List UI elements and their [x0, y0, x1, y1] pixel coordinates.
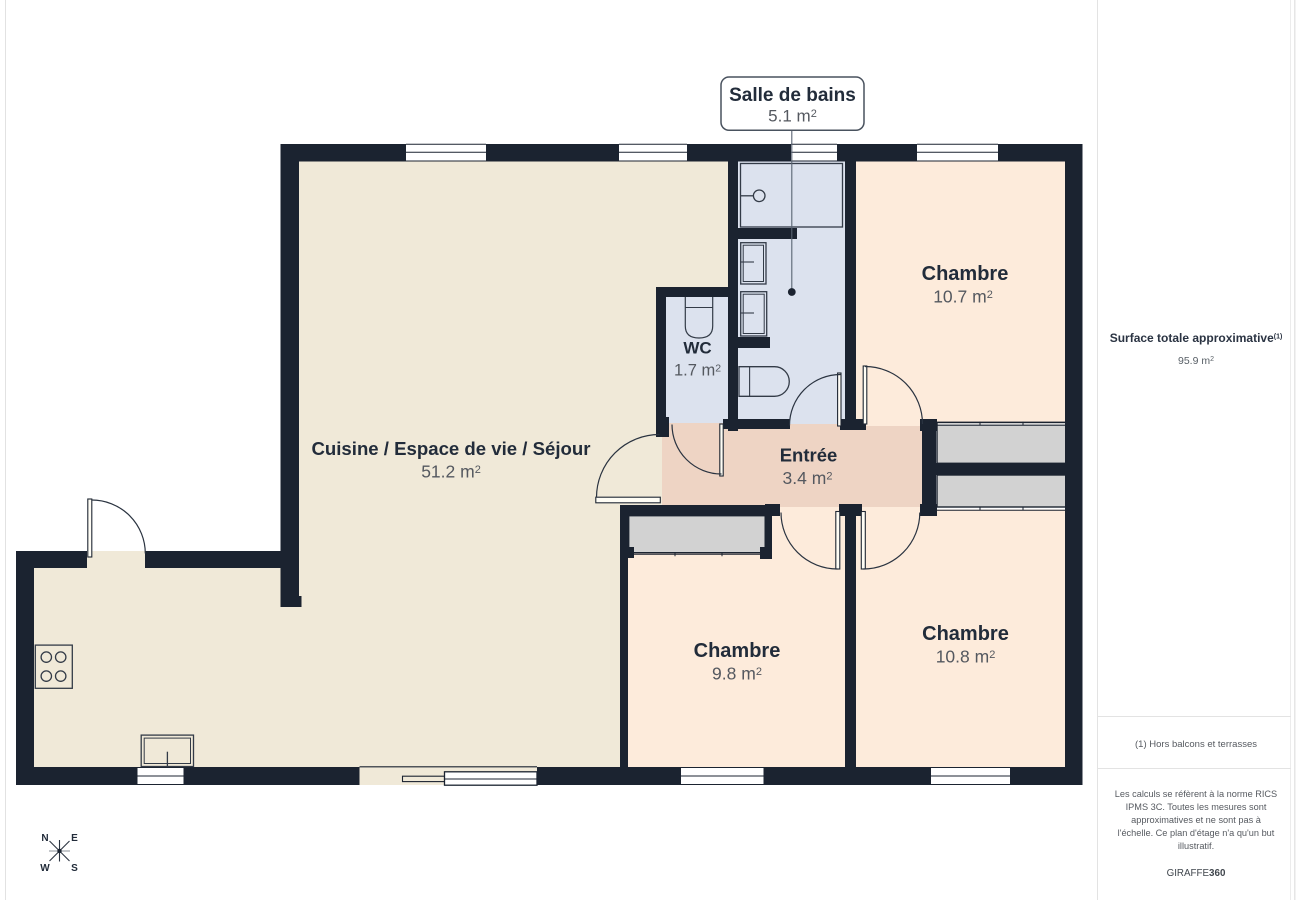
svg-text:10.7 m2: 10.7 m2 [933, 287, 993, 307]
svg-text:Salle de bains: Salle de bains [729, 85, 856, 106]
svg-text:WC: WC [683, 339, 711, 358]
svg-text:illustratif.: illustratif. [1178, 841, 1214, 851]
svg-text:9.8 m2: 9.8 m2 [712, 664, 762, 684]
svg-text:Cuisine / Espace de vie / Séjo: Cuisine / Espace de vie / Séjour [311, 438, 590, 459]
svg-text:3.4 m2: 3.4 m2 [783, 468, 833, 488]
svg-text:Surface totale approximative(1: Surface totale approximative(1) [1110, 331, 1283, 345]
svg-text:95.9 m2: 95.9 m2 [1178, 355, 1214, 367]
svg-text:Les calculs se réfèrent à la n: Les calculs se réfèrent à la norme RICS [1115, 789, 1277, 799]
svg-text:(1) Hors balcons et terrasses: (1) Hors balcons et terrasses [1135, 739, 1257, 750]
svg-text:Chambre: Chambre [922, 623, 1009, 645]
svg-text:N: N [41, 833, 48, 844]
svg-text:approximatives et ne sont pas: approximatives et ne sont pas à [1131, 815, 1262, 825]
svg-text:5.1 m2: 5.1 m2 [768, 107, 817, 126]
svg-text:l'échelle. Ce plan d'étage n'a: l'échelle. Ce plan d'étage n'a qu'un but [1118, 828, 1275, 838]
svg-text:10.8 m2: 10.8 m2 [936, 647, 996, 667]
svg-text:S: S [71, 863, 78, 874]
svg-text:Entrée: Entrée [780, 445, 838, 466]
svg-text:1.7 m2: 1.7 m2 [674, 362, 721, 380]
svg-text:IPMS 3C. Toutes les mesures so: IPMS 3C. Toutes les mesures sont [1126, 802, 1267, 812]
svg-text:E: E [71, 833, 78, 844]
svg-text:Chambre: Chambre [694, 640, 781, 662]
svg-text:GIRAFFE360: GIRAFFE360 [1167, 868, 1226, 879]
svg-text:Chambre: Chambre [922, 263, 1009, 285]
svg-text:W: W [40, 863, 50, 874]
svg-text:51.2 m2: 51.2 m2 [421, 462, 481, 482]
